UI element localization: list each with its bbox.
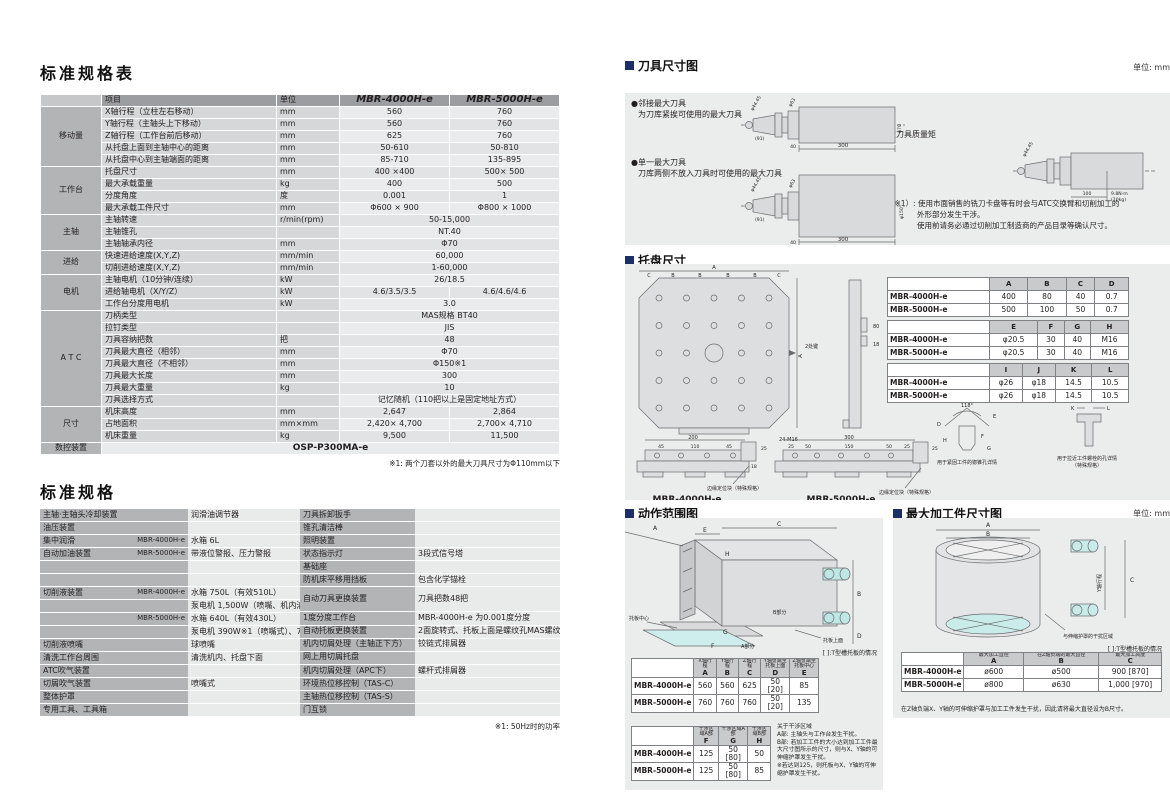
spec-row: 移动量X轴行程（立柱左右移动）mm560760: [41, 107, 560, 119]
svg-text:A部分: A部分: [741, 643, 754, 650]
table-row: MBR-4000H-e56056062550 [20]85: [632, 677, 819, 695]
equip-row: [40, 561, 300, 574]
corner-cell: [632, 659, 694, 678]
svg-text:D: D: [857, 633, 862, 640]
label-cell: 基础座: [300, 561, 415, 574]
label-cell: 切削液装置MBR-4000H-e: [40, 587, 188, 600]
workpiece-table: 最大加工直径A在Z轴负端的最大直径B最大加工高度CMBR-4000H-eø600…: [901, 652, 1162, 692]
motion-table-travel: X轴行程AY轴行程BZ轴行程CY轴负端至托板上面DZ轴负端至托板中心EMBR-4…: [631, 658, 819, 713]
svg-text:托板中心: 托板中心: [629, 615, 649, 622]
model-name: MBR-4000H-e: [632, 677, 694, 695]
value-cell: 铰链式排屑器: [415, 638, 560, 651]
label: 油压装置: [43, 524, 75, 532]
svg-text:150: 150: [845, 444, 854, 450]
header-row: 最大加工直径A在Z轴负端的最大直径B最大加工高度C: [902, 653, 1162, 666]
svg-text:（特殊规格）: （特殊规格）: [1072, 462, 1102, 469]
motion-panel: A C E H B D G F 托板中心 托板上面 A部分 B部分 [ ]:T型…: [625, 518, 883, 790]
value-cell: Φ800 × 1000: [450, 203, 560, 215]
model-name: MBR-4000H-e: [902, 666, 964, 679]
value-cell: 0.001: [340, 191, 450, 203]
cell: 560: [716, 677, 738, 695]
unit-cell: mm: [277, 371, 340, 383]
col-header: J: [1022, 364, 1055, 377]
equip-row: 机内切屑处理（主轴正下方）铰链式排屑器: [300, 638, 560, 651]
label: 主轴·主轴头冷却装置: [43, 511, 118, 519]
spec-row: 从托盘上面到主轴中心的距离mm50-61050-810: [41, 143, 560, 155]
spec-row: 刀具选择方式记忆随机（110把以上是固定地址方式）: [41, 395, 560, 407]
value-cell: 10: [340, 383, 560, 395]
model-name: MBR-4000H-e: [888, 377, 990, 390]
cell: M16: [1090, 334, 1128, 347]
col-header-unit: 单位: [277, 95, 340, 107]
spec-row: 工作台分度用电机kW3.0: [41, 299, 560, 311]
bolt-hole-detail: K L 用于拉近工件螺栓的孔详情 （特殊规格）: [1057, 406, 1117, 469]
svg-text:40: 40: [790, 144, 796, 150]
col-header-text: 干涉区域A部: [721, 727, 746, 738]
spec-row: 从托盘中心到主轴端面的距离mm85-710135-895: [41, 155, 560, 167]
svg-text:C: C: [1130, 577, 1134, 584]
motion-note-line: ※若达到125，则托板与X、Y轴的可伸缩护罩发生干扰。: [777, 763, 879, 779]
value-cell: [415, 535, 560, 548]
cell: φ20.5: [990, 334, 1038, 347]
svg-text:50: 50: [886, 444, 892, 450]
col-header: Y轴行程B: [716, 659, 738, 678]
col-header-key: A: [992, 281, 1025, 288]
table-row: MBR-5000H-eø800ø6301,000 [970]: [902, 679, 1162, 692]
svg-text:(91): (91): [755, 217, 765, 223]
col-header-key: H: [1093, 324, 1126, 331]
unit-cell: [277, 395, 340, 407]
cell: 125: [694, 745, 718, 763]
table-row: MBR-5000H-eφ26φ1814.510.5: [888, 390, 1129, 403]
motion-table-interference: 干涉区域A部F干涉区域A部G干涉区域B部HMBR-4000H-e12550 [8…: [631, 726, 771, 781]
group-cell: 电机: [41, 275, 102, 311]
corner-cell: [888, 321, 990, 334]
unit-cell: mm: [277, 167, 340, 179]
svg-text:200: 200: [688, 435, 698, 441]
value-cell: 刀具把数48把: [415, 587, 560, 612]
equip-row: 状态指示灯3段式信号塔: [300, 548, 560, 561]
model-name: MBR-5000H-e: [888, 304, 990, 317]
motion-note-line: B部: 若加工工件的大小达到加工工件最大尺寸图所示的尺寸，则与X、Y轴的可伸缩护…: [777, 740, 879, 763]
value-cell: Φ600 × 900: [340, 203, 450, 215]
equip-row: [40, 574, 300, 587]
col-header-key: C: [1069, 281, 1093, 288]
svg-text:50: 50: [805, 444, 811, 450]
spec-row: 数控装置OSP-P300MA-e: [41, 443, 560, 455]
value-cell: [415, 509, 560, 522]
value-cell: 50-810: [450, 143, 560, 155]
spec-row: 刀具最大直径（相邻）mmΦ70: [41, 347, 560, 359]
value-cell: 润滑油调节器: [188, 509, 300, 522]
label-cell: 自动加油装置MBR-5000H-e: [40, 548, 188, 561]
spec-row: 主轴锥孔NT.40: [41, 227, 560, 239]
label-cell: 整体护罩: [40, 691, 188, 704]
col-header-text: 干涉区域B部: [750, 727, 768, 738]
value-cell: 26/18.5: [340, 275, 560, 287]
value-cell: 760: [450, 107, 560, 119]
table-row: MBR-4000H-e12550 [80]50: [632, 745, 771, 763]
equip-row: 切削液喷嘴球喷嘴: [40, 639, 300, 652]
label-inner: 切屑吹气装置: [43, 680, 185, 688]
cell: 625: [738, 677, 760, 695]
spec-row: 刀具容纳把数把48: [41, 335, 560, 347]
spec-row: 分度角度度0.0011: [41, 191, 560, 203]
svg-text:A: A: [653, 525, 658, 532]
unit-cell: kW: [277, 275, 340, 287]
col-header: 最大加工直径A: [964, 653, 1024, 666]
col-header-key: B: [719, 670, 736, 677]
equip-row: 锥孔清洁棒: [300, 522, 560, 535]
cell: 760: [694, 695, 716, 713]
cell: 560: [694, 677, 716, 695]
label: 切削液喷嘴: [43, 641, 83, 649]
label: 整体护罩: [43, 693, 75, 701]
col-header: 最大加工高度C: [1099, 653, 1162, 666]
svg-text:25: 25: [932, 446, 938, 452]
svg-text:用于拉近工件螺栓的孔详情: 用于拉近工件螺栓的孔详情: [1057, 455, 1117, 462]
equip-row: 清洗工作台周围清洗机内、托盘下面: [40, 652, 300, 665]
cell: 14.5: [1055, 377, 1092, 390]
col-header: G: [1064, 321, 1090, 334]
value-cell: 喷嘴式: [188, 678, 300, 691]
value-cell: [415, 677, 560, 690]
col-header-text: Z轴行程: [741, 659, 758, 670]
label-inner: MBR-5000H-e: [43, 615, 185, 622]
svg-text:E: E: [703, 527, 707, 534]
label-cell: [40, 561, 188, 574]
item-cell: 切削进给速度(X,Y,Z): [102, 263, 277, 275]
tool-section-title: 刀具尺寸图: [638, 57, 698, 74]
value-cell: [188, 691, 300, 704]
header-row: EFGH: [888, 321, 1129, 334]
col-header-key: G: [1067, 324, 1088, 331]
equip-row: 刀具拆卸扳手: [300, 509, 560, 522]
motion-note: 关于干涉区域A部: 主轴头与工作台发生干扰。B部: 若加工工件的大小达到加工工件…: [777, 724, 879, 779]
value-cell: 1: [450, 191, 560, 203]
equip-row: 主轴热位移控制（TAS-S）: [300, 690, 560, 703]
svg-text:C: C: [777, 273, 781, 279]
value-cell: 泵电机 1,500W（喷嘴、机内清洗兼用）: [188, 600, 300, 613]
unit-cell: mm: [277, 359, 340, 371]
group-cell: 尺寸: [41, 407, 102, 443]
svg-text:40: 40: [790, 240, 796, 245]
group-cell: 数控装置: [41, 443, 102, 455]
svg-text:A: A: [986, 522, 991, 529]
svg-text:A: A: [798, 354, 804, 358]
value-cell: [188, 704, 300, 717]
svg-text:80: 80: [873, 324, 879, 330]
col-header-text: Y轴负端至托板上面: [763, 659, 787, 670]
label-cell: [40, 626, 188, 639]
motion-note-line: 关于干涉区域: [777, 724, 879, 732]
corner-cell: [632, 727, 694, 746]
svg-text:C: C: [777, 521, 781, 528]
value-cell: JIS: [340, 323, 560, 335]
group-cell: 主轴: [41, 215, 102, 251]
spec-row: 刀具最大长度mm300: [41, 371, 560, 383]
cell: 0.7: [1095, 304, 1129, 317]
label-cell: 机内切屑处理（APC下）: [300, 664, 415, 677]
svg-text:B: B: [857, 591, 861, 598]
svg-text:用于紧固工件的锪锥孔详情: 用于紧固工件的锪锥孔详情: [937, 459, 997, 466]
corner-cell: [888, 364, 990, 377]
label-cell: 锥孔清洁棒: [300, 522, 415, 535]
svg-text:托板上面: 托板上面: [823, 637, 843, 644]
value-cell: 400: [340, 179, 450, 191]
pallet-side-view: 80 18: [843, 280, 879, 428]
col-header: 干涉区域A部F: [694, 727, 718, 746]
spec-row: 机床重量kg9,50011,500: [41, 431, 560, 443]
unit-cell: [277, 227, 340, 239]
cell: 85: [790, 677, 819, 695]
right-column: 刀具尺寸图 单位: mm ●邻接最大刀具 为刀库紧挨可使用的最大刀具 ●单一最大…: [625, 0, 1170, 799]
col-header-key: H: [750, 738, 768, 745]
unit-cell: kW: [277, 287, 340, 299]
table-row: MBR-5000H-e76076076050 [20]135: [632, 695, 819, 713]
label: 切削液装置: [43, 589, 83, 597]
item-cell: 主轴电机（10分钟/连续）: [102, 275, 277, 287]
pallet-table-efgh: EFGHMBR-4000H-eφ20.53040M16MBR-5000H-eφ2…: [887, 320, 1129, 360]
table-row: MBR-5000H-e500100500.7: [888, 304, 1129, 317]
value-cell: 4.6/3.5/3.5: [340, 287, 450, 299]
spec-row: 拉钉类型JIS: [41, 323, 560, 335]
label-cell: 防机床平移用挡板: [300, 574, 415, 587]
item-cell: 进给轴电机（X/Y/Z）: [102, 287, 277, 299]
model-name: MBR-4000H-e: [632, 745, 694, 763]
item-cell: 刀具最大重量: [102, 383, 277, 395]
cell: φ20.5: [990, 347, 1038, 360]
equip-row: 切屑吹气装置喷嘴式: [40, 678, 300, 691]
svg-text:300: 300: [838, 237, 849, 243]
col-header-key: B: [1030, 281, 1063, 288]
unit-cell: mm/min: [277, 251, 340, 263]
label-cell: 网上用切屑托盘: [300, 651, 415, 664]
item-cell: X轴行程（立柱左右移动）: [102, 107, 277, 119]
value-cell: [415, 522, 560, 535]
spec-row: A T C刀柄类型MAS规格 BT40: [41, 311, 560, 323]
svg-text:MBR-4000H-e: MBR-4000H-e: [653, 495, 722, 500]
svg-text:φ44.45: φ44.45: [750, 176, 763, 193]
label-cell: 主轴·主轴头冷却装置: [40, 509, 188, 522]
col-header: Y轴负端至托板上面D: [761, 659, 790, 678]
value-cell: 560: [340, 119, 450, 131]
unit-cell: mm: [277, 143, 340, 155]
value-cell: 4.6/4.6/4.6: [450, 287, 560, 299]
value-cell: 3.0: [340, 299, 560, 311]
col-header: X轴行程A: [694, 659, 716, 678]
value-cell: 400 ×400: [340, 167, 450, 179]
cell: 760: [716, 695, 738, 713]
model-name: MBR-5000H-e: [888, 390, 990, 403]
label-cell: 集中润滑MBR-4000H-e: [40, 535, 188, 548]
cell: 50: [748, 745, 771, 763]
svg-text:MBR-5000H-e: MBR-5000H-e: [807, 495, 876, 500]
edge-block-view-4000: 200 45 110 45 25 18 边缘定位块（特殊规格） MBR-4000…: [637, 435, 767, 500]
col-header: C: [1066, 278, 1095, 291]
group-cell: A T C: [41, 311, 102, 407]
cell: ø630: [1024, 679, 1099, 692]
svg-text:300: 300: [838, 143, 849, 149]
item-cell: 主轴轴承内径: [102, 239, 277, 251]
unit-cell: kg: [277, 431, 340, 443]
svg-text:φ44.45: φ44.45: [750, 95, 763, 112]
col-header-key: J: [1025, 367, 1053, 374]
svg-text:45: 45: [658, 444, 664, 450]
svg-text:B: B: [671, 273, 675, 279]
label-cell: 主轴热位移控制（TAS-S）: [300, 690, 415, 703]
cell: 50 [20]: [761, 695, 790, 713]
spec-row: 刀具最大重量kg10: [41, 383, 560, 395]
tool-unit-label: 单位: mm: [1133, 62, 1170, 73]
corner-cell: [902, 653, 964, 666]
label-cell: MBR-5000H-e: [40, 613, 188, 626]
value-cell: [415, 703, 560, 716]
cell: 100: [1028, 304, 1066, 317]
workpiece-panel: A B C Y轴行程 与伸缩护罩的干扰区域 [ ]:T型槽托板的情况 最大加工直…: [893, 518, 1170, 718]
svg-text:(10kg): (10kg): [1111, 197, 1126, 203]
cell: 14.5: [1055, 390, 1092, 403]
label-cell: 油压装置: [40, 522, 188, 535]
value-cell: 625: [340, 131, 450, 143]
item-cell: 工作台分度用电机: [102, 299, 277, 311]
model-name: MBR-5000H-e: [632, 695, 694, 713]
col-header: 在Z轴负端的最大直径B: [1024, 653, 1099, 666]
cell: 50 [20]: [761, 677, 790, 695]
spec-row: 主轴轴承内径mmΦ70: [41, 239, 560, 251]
svg-text:φ70: φ70: [897, 124, 903, 133]
header-row: IJKL: [888, 364, 1129, 377]
table-row: MBR-4000H-e40080400.7: [888, 291, 1129, 304]
unit-cell: [277, 323, 340, 335]
mass-moment-drawing: 100 9.8N·m (10kg) φ44.45: [1013, 141, 1157, 203]
svg-text:B: B: [698, 273, 702, 279]
value-cell: 300: [340, 371, 560, 383]
item-cell: 刀具最大直径（不相邻）: [102, 359, 277, 371]
unit-cell: mm: [277, 131, 340, 143]
col-header: 干涉区域A部G: [718, 727, 748, 746]
svg-text:118°: 118°: [961, 403, 974, 409]
label-inner: 清洗工作台周围: [43, 654, 185, 662]
value-cell: 500: [450, 179, 560, 191]
col-header-key: B: [1026, 658, 1096, 665]
value-cell: 2,647: [340, 407, 450, 419]
corner-cell: [41, 95, 102, 107]
equip-row: 1度分度工作台MBR-4000H-e 为0.001度分度: [300, 612, 560, 625]
section-square-icon: [625, 61, 634, 70]
spec-row: 最大承载重量kg400500: [41, 179, 560, 191]
item-cell: 机床高度: [102, 407, 277, 419]
col-header-key: E: [992, 324, 1035, 331]
spec-row: 最大承载工件尺寸mmΦ600 × 900Φ800 × 1000: [41, 203, 560, 215]
model-name: MBR-5000H-e: [632, 763, 694, 781]
svg-text:φ63: φ63: [788, 178, 798, 189]
spec-row: 刀具最大直径（不相邻）mmΦ150※1: [41, 359, 560, 371]
unit-cell: 把: [277, 335, 340, 347]
model-name: MBR-4000H-e: [888, 334, 990, 347]
model-name: MBR-5000H-e: [902, 679, 964, 692]
equip-table-title: 标准规格: [40, 479, 560, 503]
svg-text:B部分: B部分: [773, 609, 786, 616]
table-row: MBR-4000H-eφ20.53040M16: [888, 334, 1129, 347]
svg-text:25: 25: [788, 444, 794, 450]
equip-row: 网上用切屑托盘: [300, 651, 560, 664]
value-cell: 包含化学锚栓: [415, 574, 560, 587]
svg-text:100: 100: [1083, 191, 1092, 197]
group-cell: 移动量: [41, 107, 102, 167]
cell: 30: [1038, 334, 1064, 347]
cell: 125: [694, 763, 718, 781]
col-header: Z轴行程C: [738, 659, 760, 678]
svg-text:F: F: [981, 434, 984, 440]
spec-row: 占地面积mm×mm2,420× 4,7002,700× 4,710: [41, 419, 560, 431]
cell: 40: [1064, 347, 1090, 360]
value-cell: 50-610: [340, 143, 450, 155]
cell: ø600: [964, 666, 1024, 679]
equip-tables: 主轴·主轴头冷却装置润滑油调节器油压装置集中润滑MBR-4000H-e水箱 6L…: [40, 509, 560, 717]
equip-row: MBR-5000H-e水箱 640L（有效430L）: [40, 613, 300, 626]
cell: 900 [870]: [1099, 666, 1162, 679]
svg-text:F: F: [711, 643, 715, 650]
value-cell: 760: [450, 131, 560, 143]
col-header-key: A: [966, 658, 1021, 665]
item-cell: 分度角度: [102, 191, 277, 203]
svg-text:B: B: [986, 531, 990, 538]
header-row: ABCD: [888, 278, 1129, 291]
col-header-item: 项目: [102, 95, 277, 107]
adjacent-max-tool-drawing: 300 40 φ44.45 φ63 φ70 (91): [741, 95, 1157, 245]
value-cell: 560: [340, 107, 450, 119]
catalog-page: { "spec_table": { "title": "标准规格表", "col…: [0, 0, 1170, 799]
col-header-key: E: [792, 670, 816, 677]
workpiece-footnote: 在Z轴负端X、Y轴的可伸缩护罩与加工工件发生干扰，因此请将最大直径设为B尺寸。: [901, 704, 1163, 713]
value-cell: 500× 500: [450, 167, 560, 179]
col-header-text: 干涉区域A部: [696, 727, 715, 738]
svg-text:H: H: [943, 438, 947, 444]
col-header-key: D: [1097, 281, 1126, 288]
svg-text:B: B: [753, 273, 757, 279]
model-name: MBR-4000H-e: [888, 291, 990, 304]
cell: 85: [748, 763, 771, 781]
equip-table-left: 主轴·主轴头冷却装置润滑油调节器油压装置集中润滑MBR-4000H-e水箱 6L…: [40, 509, 300, 717]
unit-cell: mm: [277, 107, 340, 119]
cell: 1,000 [970]: [1099, 679, 1162, 692]
value-cell: [415, 690, 560, 703]
svg-text:G: G: [987, 446, 991, 452]
label-cell: 机内切屑处理（主轴正下方）: [300, 638, 415, 651]
equip-row: 自动加油装置MBR-5000H-e带液位警报、压力警报: [40, 548, 300, 561]
label-inner: 整体护罩: [43, 693, 185, 701]
model-sub: MBR-4000H-e: [137, 589, 185, 596]
equip-row: 防机床平移用挡板包含化学锚栓: [300, 574, 560, 587]
corner-cell: [888, 278, 990, 291]
value-cell: 11,500: [450, 431, 560, 443]
pallet-table-abcd: ABCDMBR-4000H-e40080400.7MBR-5000H-e5001…: [887, 277, 1129, 317]
header-row: X轴行程AY轴行程BZ轴行程CY轴负端至托板上面DZ轴负端至托板中心E: [632, 659, 819, 678]
label-cell: 门互锁: [300, 703, 415, 716]
value-cell: NT.40: [340, 227, 560, 239]
svg-text:300: 300: [844, 435, 854, 441]
cell: 0.7: [1095, 291, 1129, 304]
unit-cell: mm: [277, 239, 340, 251]
svg-text:45: 45: [726, 444, 732, 450]
svg-text:H: H: [725, 551, 730, 558]
group-cell: 进给: [41, 251, 102, 275]
spec-row: 进给轴电机（X/Y/Z）kW4.6/3.5/3.54.6/4.6/4.6: [41, 287, 560, 299]
unit-cell: kg: [277, 179, 340, 191]
label-cell: 自动刀具更换装置: [300, 587, 415, 612]
item-cell: Y轴行程（主轴头上下移动）: [102, 119, 277, 131]
